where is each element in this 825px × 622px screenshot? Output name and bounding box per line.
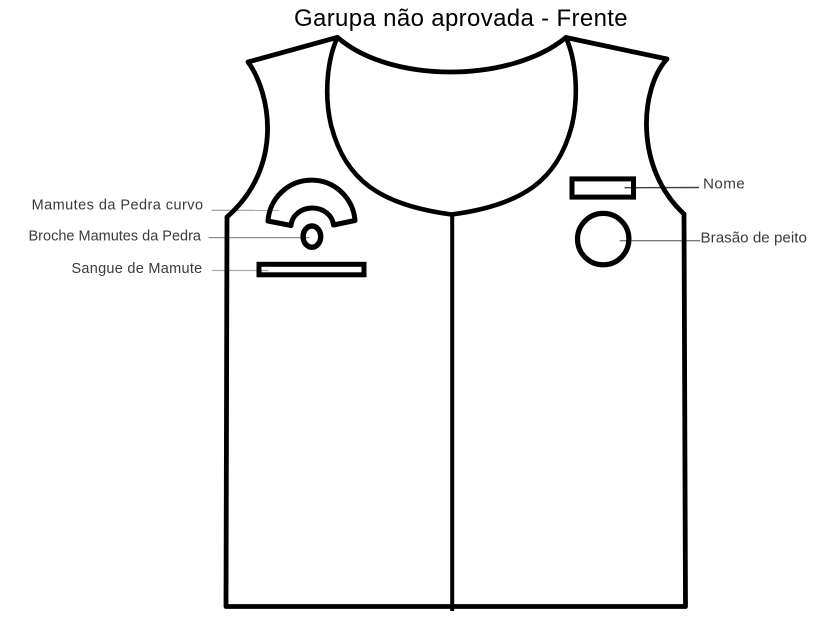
svg-text:Brasão de peito: Brasão de peito bbox=[701, 229, 807, 246]
svg-text:Broche Mamutes da Pedra: Broche Mamutes da Pedra bbox=[29, 228, 202, 244]
svg-text:Garupa não aprovada - Frente: Garupa não aprovada - Frente bbox=[294, 5, 628, 32]
svg-text:Mamutes da Pedra curvo: Mamutes da Pedra curvo bbox=[32, 198, 204, 214]
svg-text:Sangue de Mamute: Sangue de Mamute bbox=[71, 261, 202, 277]
svg-text:Nome: Nome bbox=[703, 176, 745, 193]
